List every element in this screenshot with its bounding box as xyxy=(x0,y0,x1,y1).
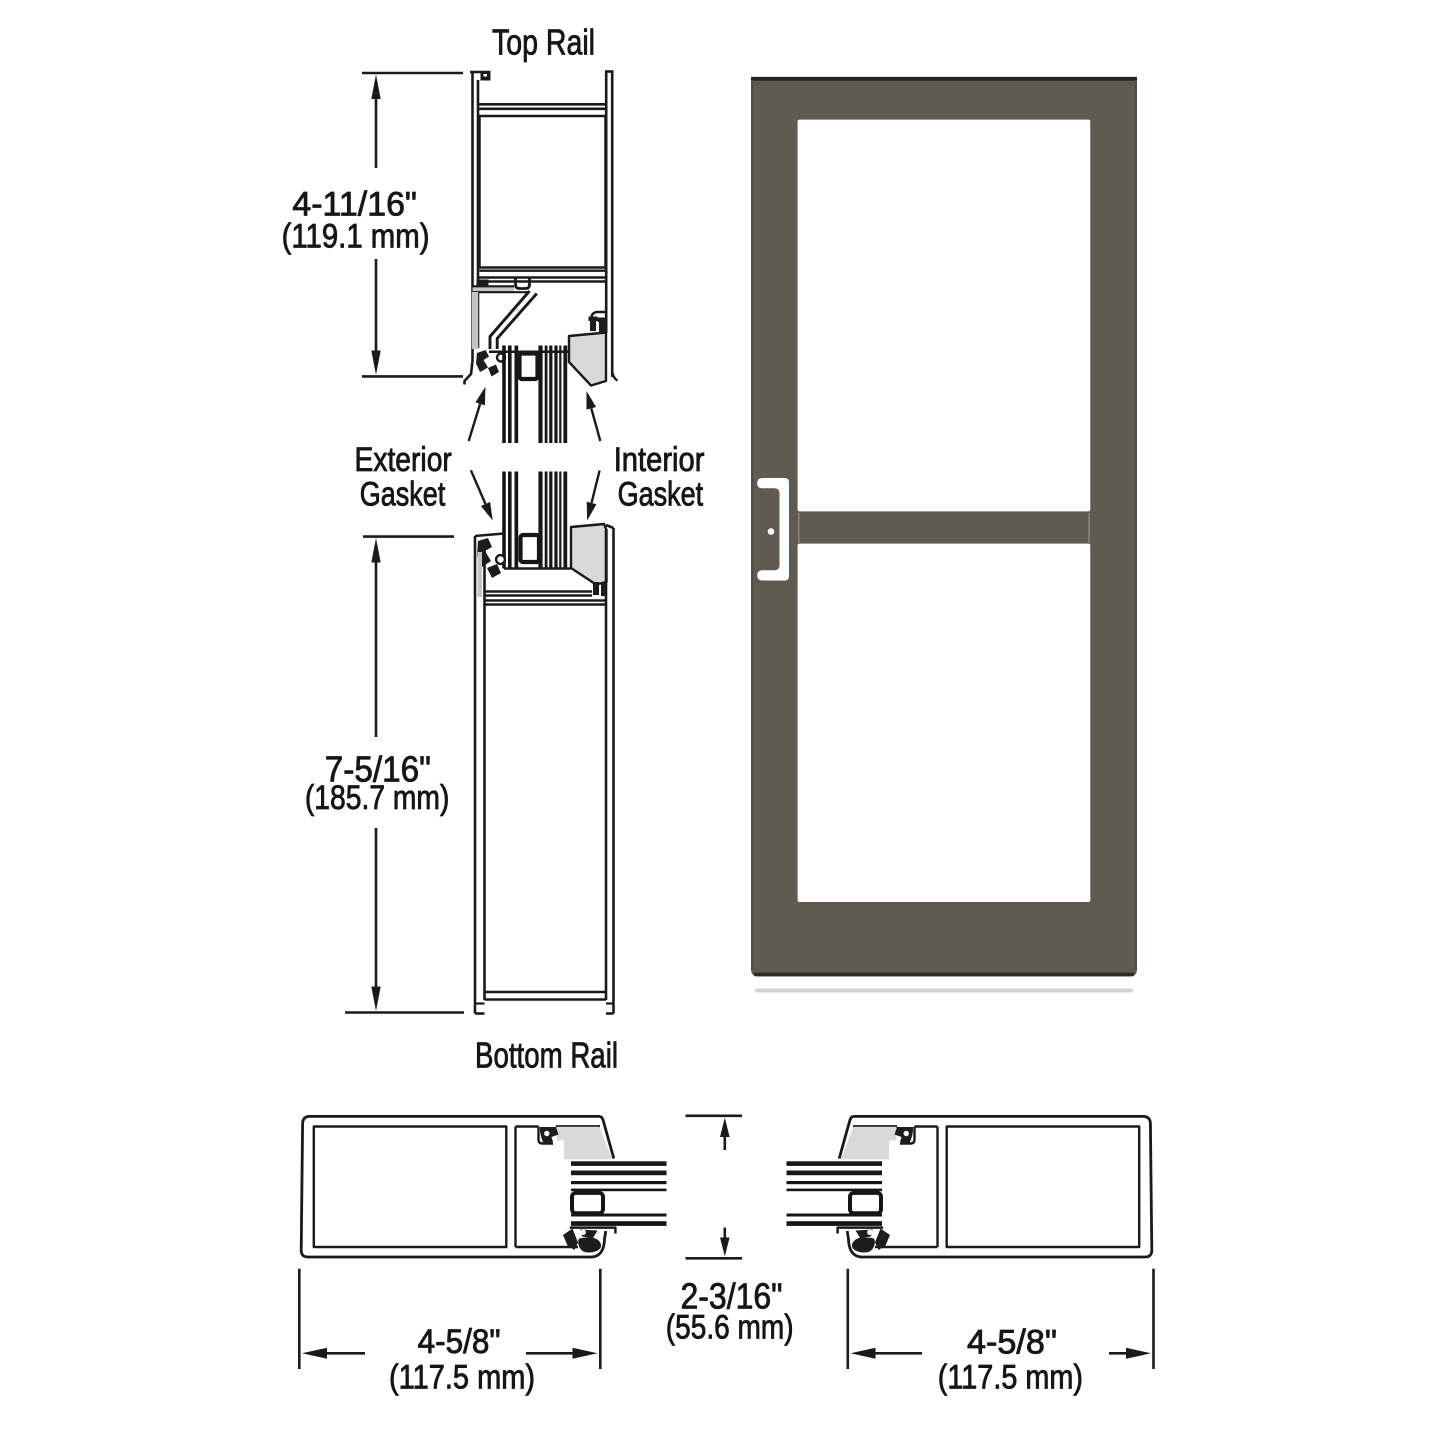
svg-text:(55.6 mm): (55.6 mm) xyxy=(666,1308,794,1346)
svg-text:(185.7 mm): (185.7 mm) xyxy=(305,779,450,817)
svg-text:Interior: Interior xyxy=(614,441,705,479)
svg-text:(117.5 mm): (117.5 mm) xyxy=(389,1359,535,1397)
svg-text:Exterior: Exterior xyxy=(355,441,452,479)
svg-text:Bottom Rail: Bottom Rail xyxy=(475,1035,618,1076)
svg-text:Gasket: Gasket xyxy=(360,476,446,514)
svg-text:4-5/8": 4-5/8" xyxy=(418,1323,501,1361)
svg-text:(119.1 mm): (119.1 mm) xyxy=(282,218,430,256)
svg-text:4-5/8": 4-5/8" xyxy=(967,1323,1057,1361)
svg-text:(117.5 mm): (117.5 mm) xyxy=(938,1359,1083,1397)
svg-text:Gasket: Gasket xyxy=(618,476,704,514)
svg-text:Top Rail: Top Rail xyxy=(492,22,595,63)
